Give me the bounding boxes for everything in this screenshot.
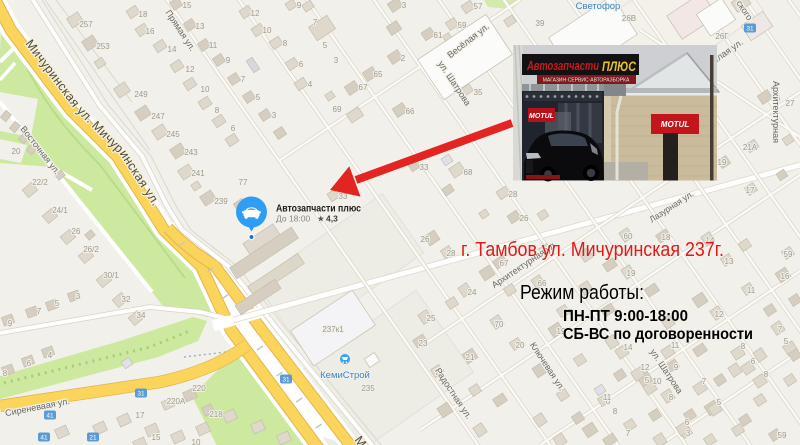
svg-text:5: 5 [784, 337, 789, 346]
svg-text:7: 7 [626, 429, 631, 438]
svg-text:г. Тамбов ул. Мичуринская 237г: г. Тамбов ул. Мичуринская 237г. [461, 238, 724, 261]
svg-text:28: 28 [447, 249, 456, 258]
svg-text:9: 9 [8, 319, 13, 328]
svg-text:15: 15 [183, 1, 192, 10]
svg-text:218: 218 [209, 410, 223, 419]
svg-text:21А: 21А [743, 143, 758, 152]
svg-text:27: 27 [786, 99, 795, 108]
svg-text:МАГАЗИН·СЕРВИС·АВТОРАЗБОРКА: МАГАЗИН·СЕРВИС·АВТОРАЗБОРКА [543, 78, 630, 84]
svg-text:21: 21 [89, 435, 97, 442]
svg-text:18: 18 [139, 10, 148, 19]
svg-text:3: 3 [402, 1, 407, 10]
svg-text:8: 8 [669, 393, 674, 402]
svg-text:20: 20 [12, 147, 21, 156]
svg-text:8: 8 [741, 342, 746, 351]
svg-text:253: 253 [96, 42, 110, 51]
svg-text:12: 12 [186, 65, 195, 74]
svg-text:8: 8 [613, 407, 618, 416]
svg-text:26: 26 [520, 214, 529, 223]
svg-text:33: 33 [420, 163, 429, 172]
svg-text:21: 21 [466, 353, 475, 362]
svg-text:35: 35 [474, 88, 483, 97]
svg-text:8: 8 [283, 39, 288, 48]
svg-text:СБ-ВС по договоренности: СБ-ВС по договоренности [563, 326, 753, 343]
svg-text:3: 3 [334, 56, 339, 65]
svg-text:34: 34 [137, 311, 146, 320]
svg-text:57: 57 [474, 2, 483, 11]
svg-text:247: 247 [151, 112, 165, 121]
svg-text:ПН-ПТ 9:00-18:00: ПН-ПТ 9:00-18:00 [563, 308, 688, 325]
svg-text:28: 28 [509, 190, 518, 199]
svg-text:5: 5 [717, 398, 722, 407]
svg-text:26: 26 [72, 227, 81, 236]
svg-text:13: 13 [196, 22, 205, 31]
svg-text:243: 243 [184, 148, 198, 157]
svg-text:237к1: 237к1 [322, 325, 344, 334]
svg-text:61: 61 [434, 31, 443, 40]
svg-text:10: 10 [192, 438, 201, 445]
svg-text:9: 9 [297, 1, 302, 10]
svg-text:6: 6 [27, 359, 32, 368]
svg-text:19: 19 [718, 158, 727, 167]
svg-text:26В: 26В [622, 14, 636, 23]
svg-text:12: 12 [251, 9, 260, 18]
svg-text:3: 3 [76, 292, 81, 301]
svg-text:7: 7 [702, 377, 707, 386]
svg-text:7: 7 [778, 325, 783, 334]
svg-text:13: 13 [725, 257, 734, 266]
svg-text:220А: 220А [167, 397, 186, 406]
svg-text:31: 31 [137, 391, 145, 398]
svg-text:10: 10 [263, 26, 272, 35]
svg-text:22/2: 22/2 [32, 178, 48, 187]
svg-text:11: 11 [603, 393, 612, 402]
svg-text:69: 69 [333, 105, 342, 114]
svg-text:7: 7 [37, 307, 42, 316]
svg-text:3: 3 [272, 111, 277, 120]
svg-text:220: 220 [192, 384, 206, 393]
svg-text:Светофор: Светофор [576, 1, 621, 12]
svg-text:★: ★ [317, 214, 325, 224]
svg-text:16: 16 [146, 27, 155, 36]
svg-text:11: 11 [747, 286, 756, 295]
svg-text:24: 24 [468, 288, 477, 297]
svg-text:25: 25 [427, 314, 436, 323]
svg-text:66: 66 [406, 107, 415, 116]
svg-text:26: 26 [421, 235, 430, 244]
svg-text:77: 77 [239, 178, 248, 187]
svg-text:12: 12 [641, 363, 650, 372]
svg-text:До 18:00: До 18:00 [276, 214, 310, 224]
svg-text:5: 5 [256, 93, 261, 102]
svg-text:Архитектурная: Архитектурная [771, 81, 781, 143]
svg-text:20: 20 [516, 341, 525, 350]
svg-text:239: 239 [214, 197, 228, 206]
svg-text:7: 7 [313, 18, 318, 27]
svg-text:9: 9 [674, 363, 679, 372]
svg-text:257: 257 [79, 20, 93, 29]
svg-text:4: 4 [48, 351, 53, 360]
svg-text:5: 5 [323, 41, 328, 50]
svg-text:65: 65 [374, 70, 383, 79]
svg-text:26Г: 26Г [715, 32, 729, 41]
svg-text:4,3: 4,3 [326, 214, 338, 224]
svg-text:7: 7 [241, 75, 246, 84]
svg-text:8: 8 [3, 369, 8, 378]
svg-text:10: 10 [201, 85, 210, 94]
svg-text:12: 12 [715, 310, 724, 319]
svg-text:4: 4 [308, 80, 313, 89]
svg-text:26/2: 26/2 [83, 245, 99, 254]
svg-text:39: 39 [536, 19, 545, 28]
svg-text:241: 241 [191, 169, 205, 178]
svg-text:9: 9 [226, 56, 231, 65]
svg-text:14: 14 [168, 45, 177, 54]
svg-text:31: 31 [282, 377, 290, 384]
svg-text:70: 70 [495, 320, 504, 329]
svg-text:16: 16 [781, 272, 790, 281]
svg-text:17: 17 [746, 186, 755, 195]
svg-text:5: 5 [55, 299, 60, 308]
svg-text:41: 41 [40, 435, 48, 442]
svg-text:41: 41 [46, 413, 54, 420]
svg-text:Автозапчасти: Автозапчасти [526, 58, 599, 73]
svg-text:11: 11 [209, 41, 218, 50]
svg-text:15: 15 [152, 433, 161, 442]
svg-text:24/1: 24/1 [52, 206, 68, 215]
svg-text:235: 235 [361, 384, 375, 393]
svg-text:30/1: 30/1 [103, 271, 119, 280]
svg-text:6: 6 [231, 124, 236, 133]
svg-text:17: 17 [136, 411, 145, 420]
svg-text:32: 32 [122, 295, 131, 304]
svg-text:5: 5 [645, 376, 650, 385]
svg-text:59: 59 [784, 250, 793, 259]
svg-text:31: 31 [746, 26, 754, 33]
svg-text:67: 67 [359, 83, 368, 92]
svg-text:6: 6 [751, 357, 756, 366]
svg-text:2: 2 [401, 54, 406, 63]
svg-text:59: 59 [778, 431, 787, 440]
svg-text:6: 6 [685, 418, 690, 427]
svg-text:19: 19 [627, 269, 636, 278]
svg-text:Режим работы:: Режим работы: [520, 282, 644, 304]
svg-text:КемиСтрой: КемиСтрой [320, 370, 370, 381]
svg-text:8: 8 [215, 106, 220, 115]
svg-text:8: 8 [764, 370, 769, 379]
svg-text:6: 6 [299, 60, 304, 69]
svg-text:249: 249 [134, 90, 148, 99]
svg-text:3: 3 [686, 429, 691, 438]
svg-text:59: 59 [458, 21, 467, 30]
svg-text:ПЛЮС: ПЛЮС [602, 59, 636, 74]
svg-text:14: 14 [624, 343, 633, 352]
svg-text:MOTUL: MOTUL [661, 120, 690, 129]
svg-text:10: 10 [653, 377, 662, 386]
svg-text:23: 23 [419, 339, 428, 348]
svg-text:MOTUL: MOTUL [529, 113, 554, 120]
svg-text:68: 68 [464, 168, 473, 177]
svg-text:245: 245 [166, 130, 180, 139]
